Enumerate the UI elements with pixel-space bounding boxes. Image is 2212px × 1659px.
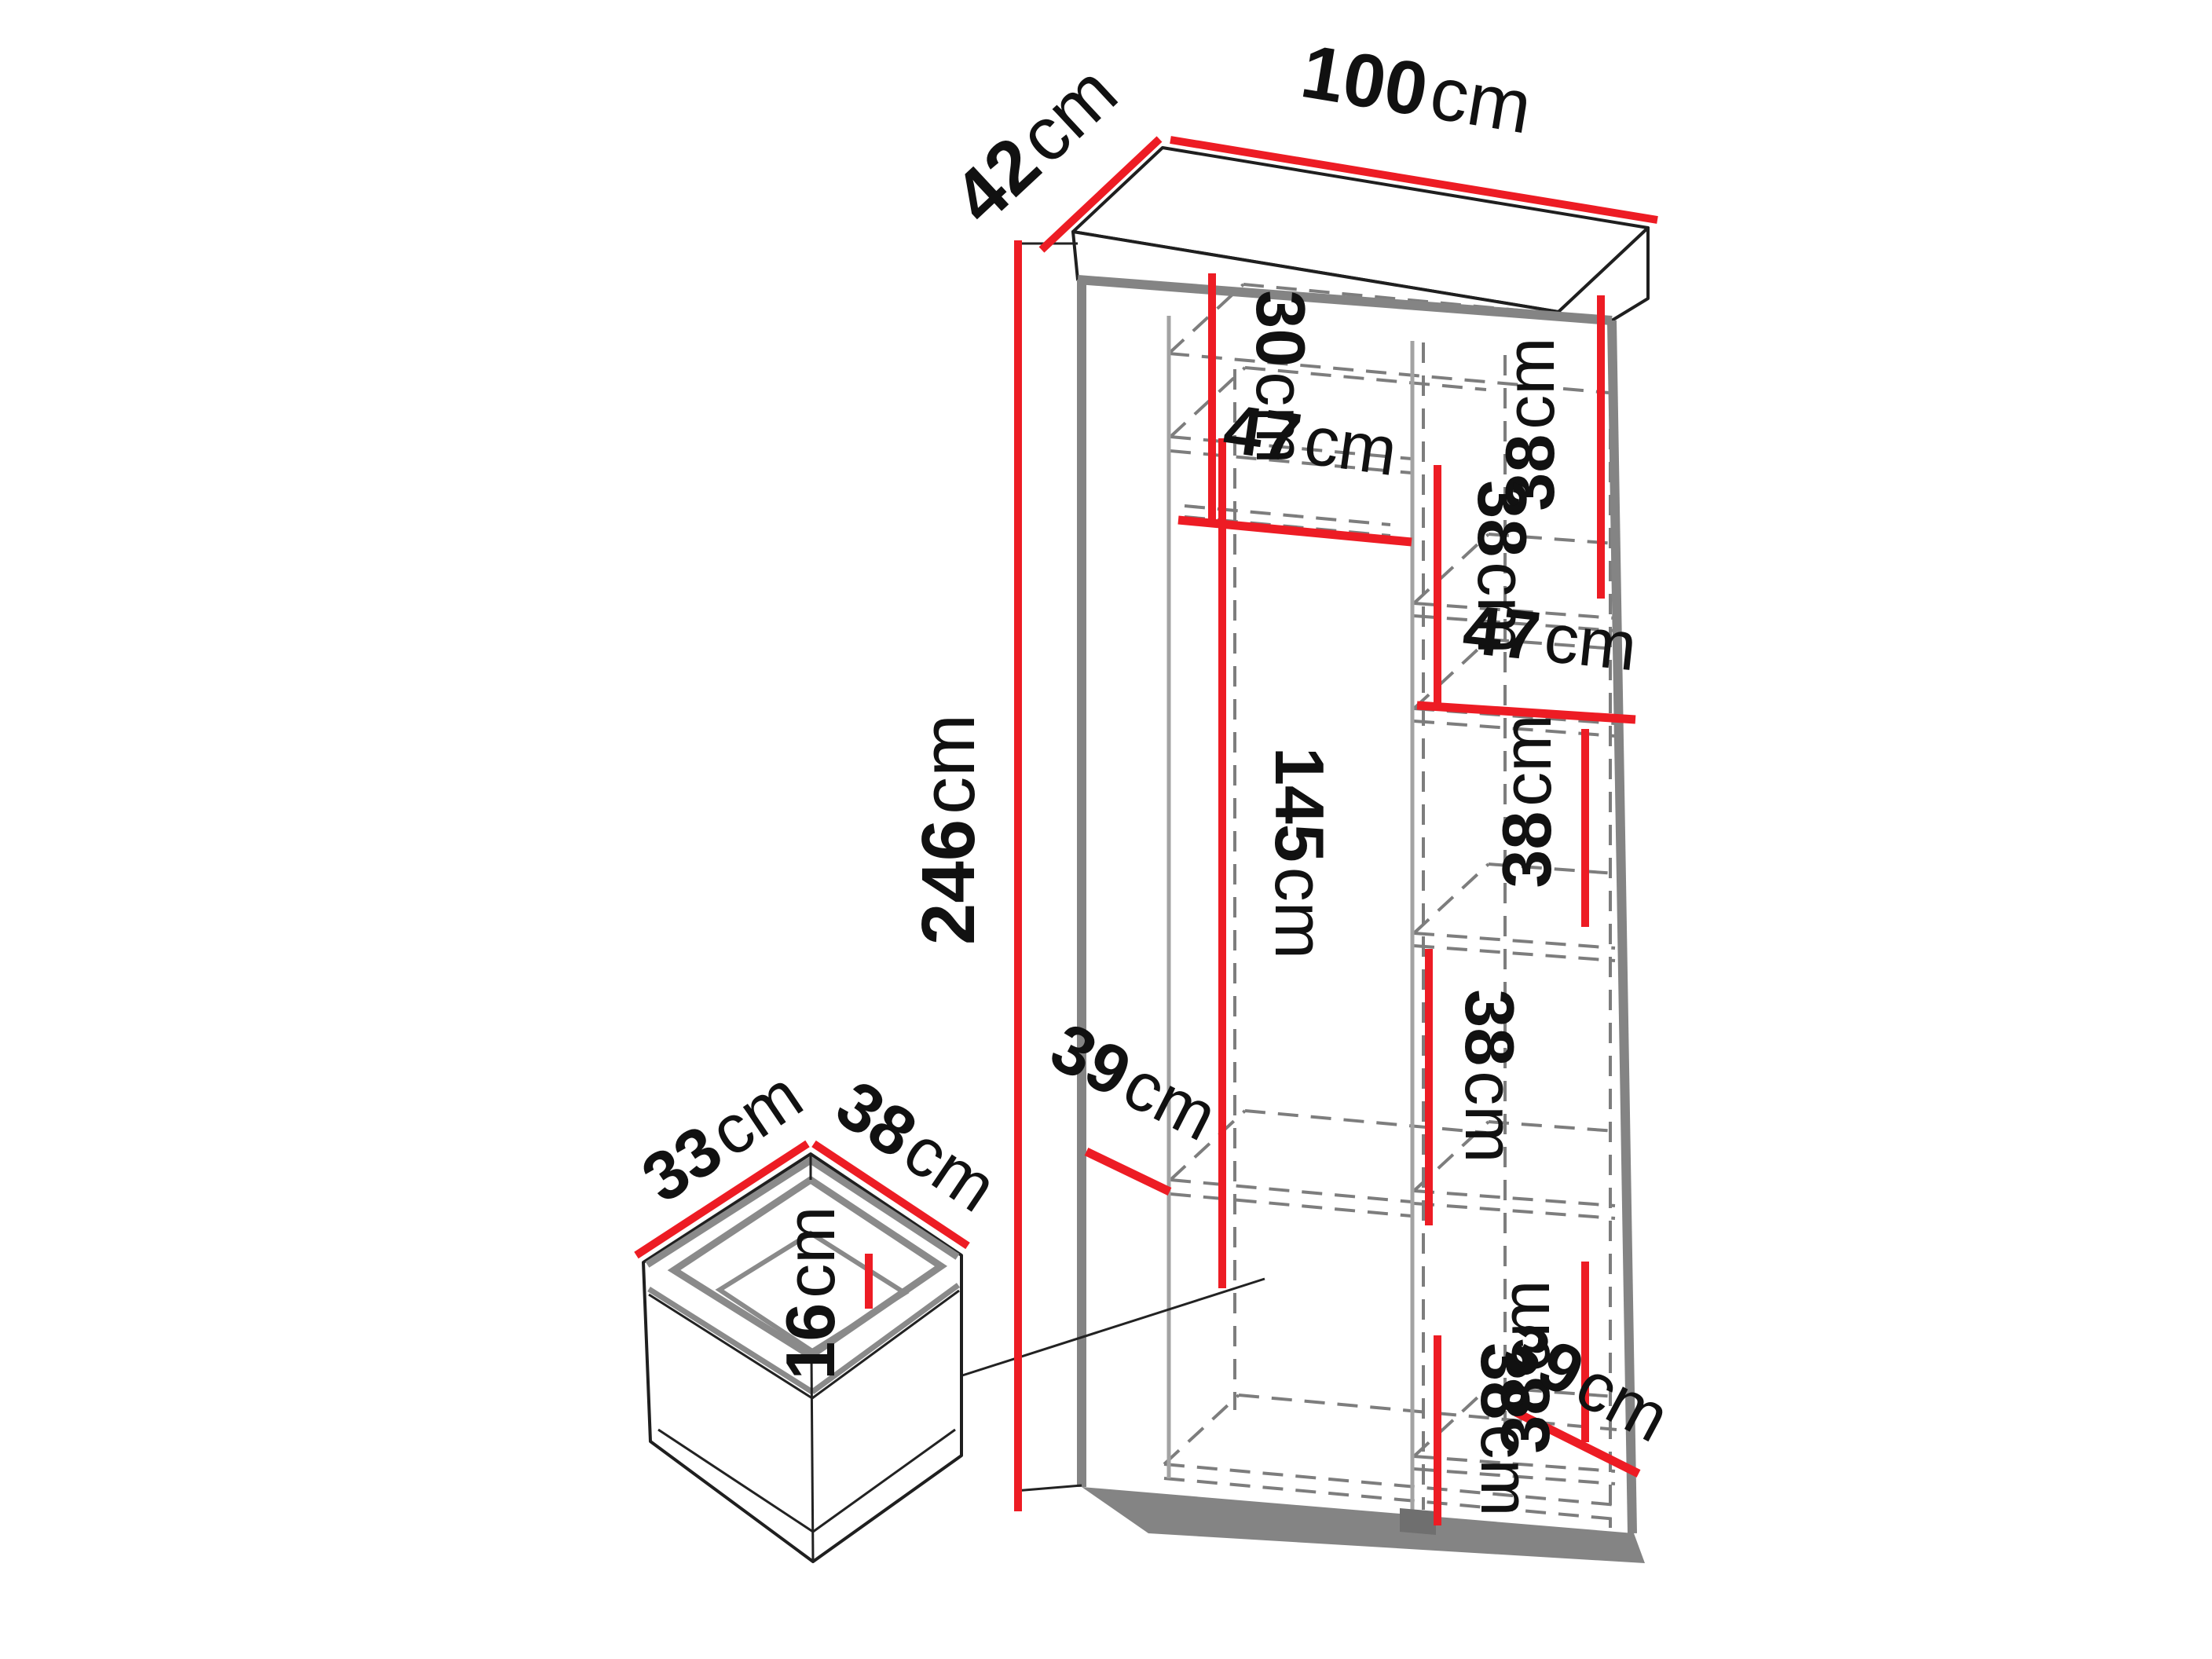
drawer-front-corner [811,1356,813,1562]
dim-label-38-3: 38cm [1488,714,1566,888]
center-foot [1400,1508,1436,1535]
dim-label-drawer-16: 16cm [771,1206,849,1379]
dim-label-width-100: 100cm [1295,29,1537,150]
diagram-canvas: 100cm 42cm 246cm 30cm 47cm 145cm 39cm 38… [0,0,2212,1659]
dim-label-height-246: 246cm [906,714,991,945]
dim-label-hanging-145: 145cm [1261,747,1339,959]
dim-label-38-4: 38cm [1451,989,1529,1163]
wardrobe-dimension-diagram: 100cm 42cm 246cm 30cm 47cm 145cm 39cm 38… [0,0,2212,1659]
height-tick-bottom [1015,1485,1082,1491]
